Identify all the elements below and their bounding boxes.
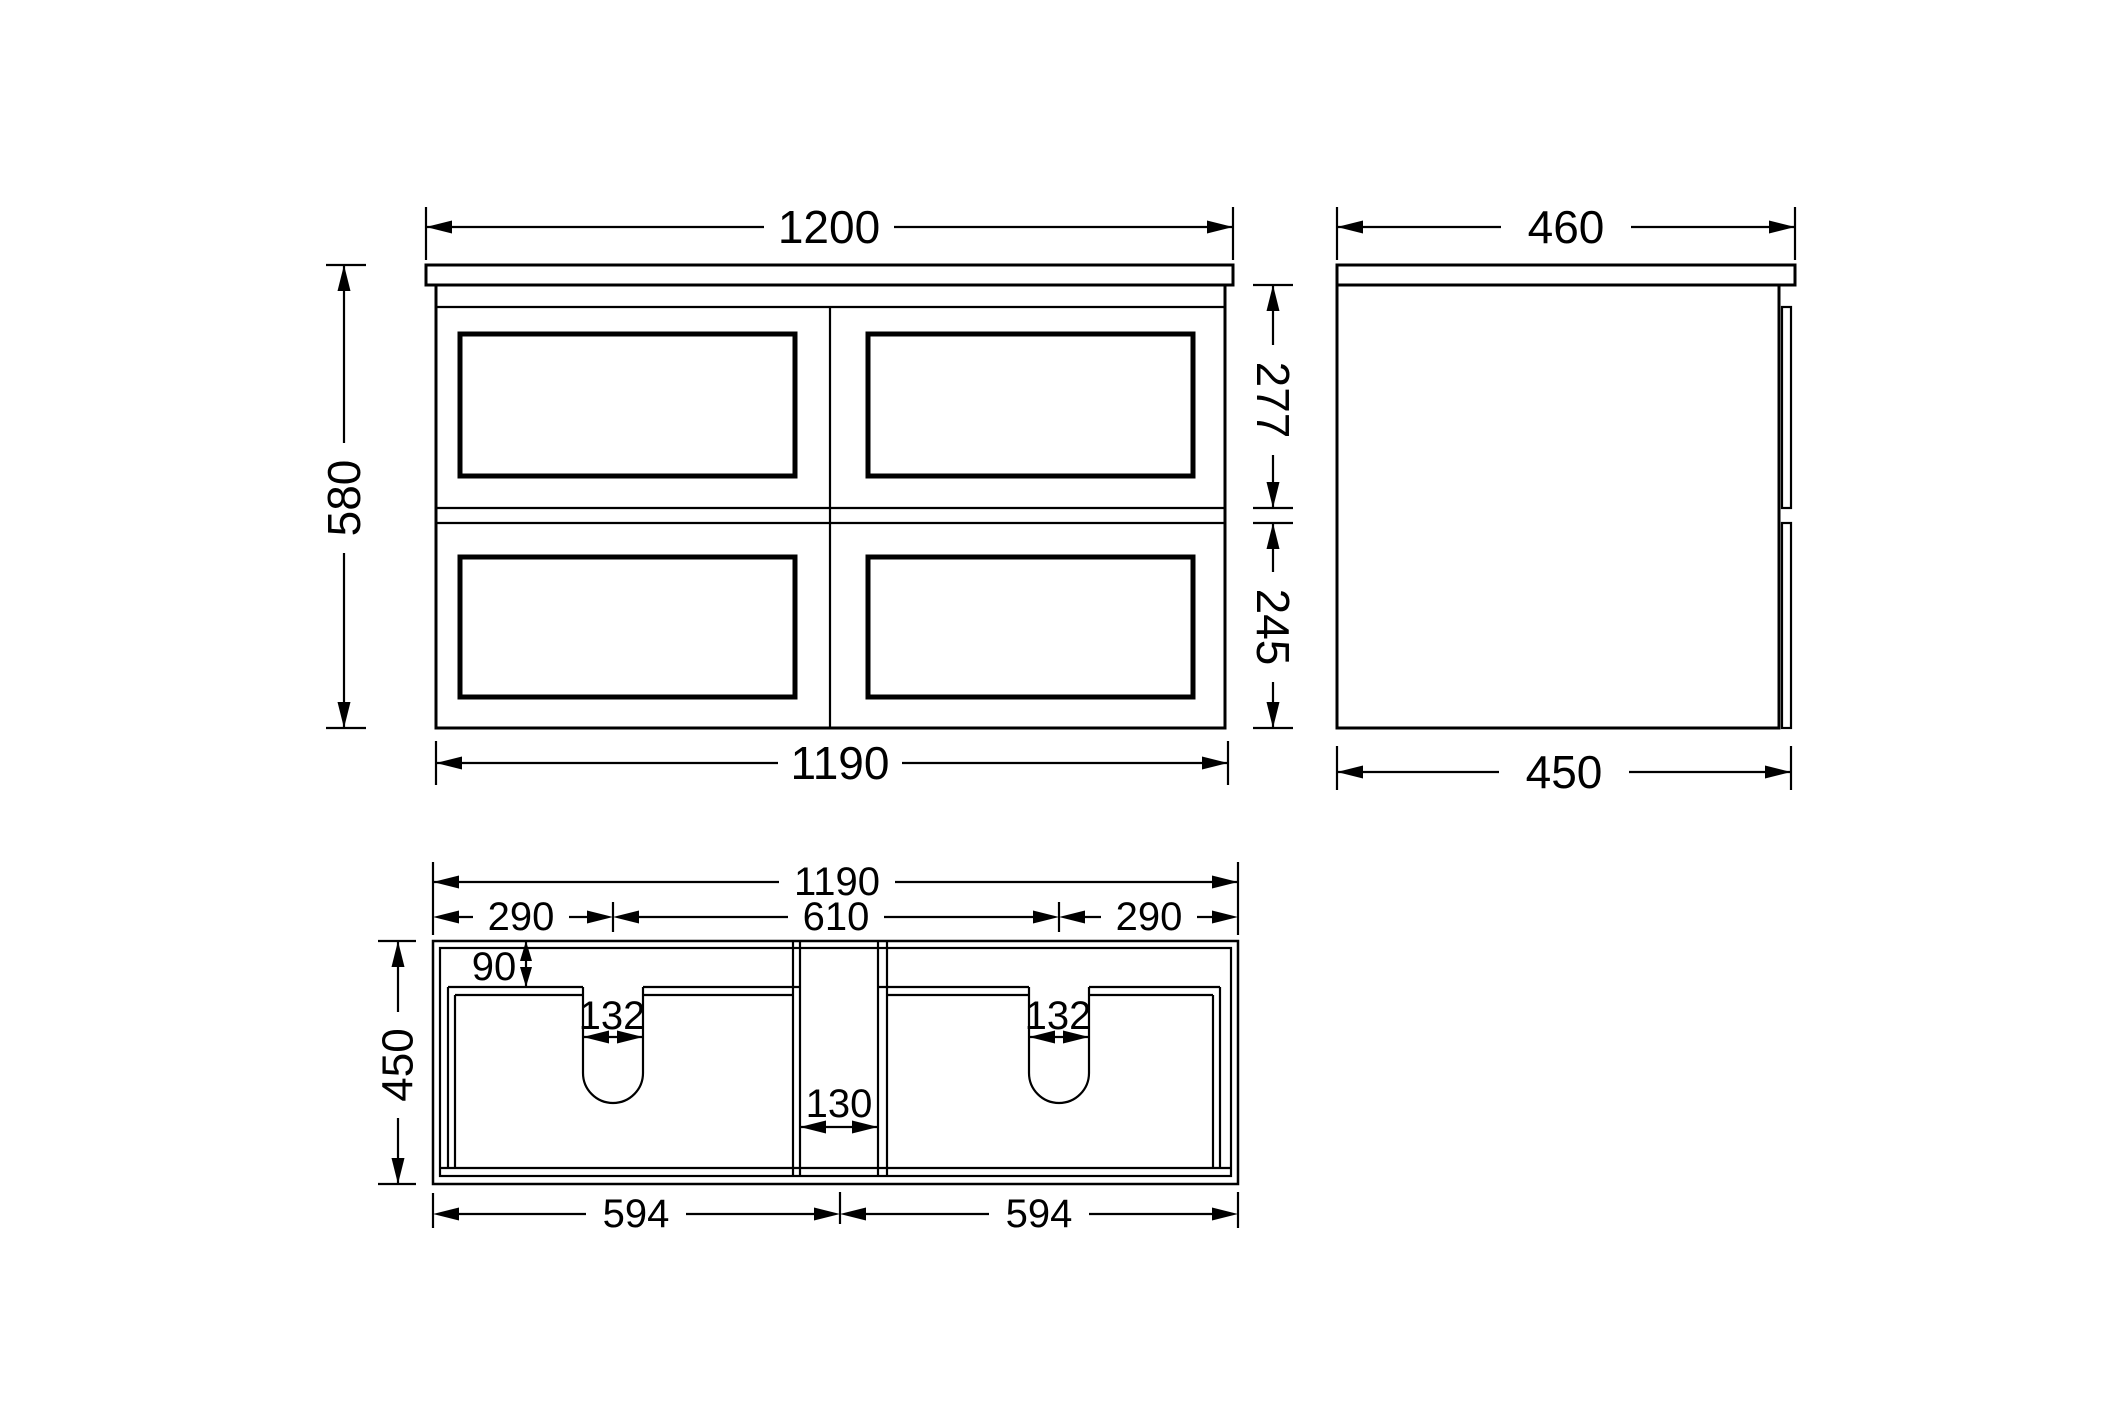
- arrowhead: [1212, 911, 1238, 924]
- dim-plan-drawer-width-left-label: 594: [603, 1192, 670, 1236]
- dim-front-top-drawer-height-label: 277: [1247, 362, 1299, 439]
- plan-outer-outline: [433, 941, 1238, 1184]
- dim-plan-back-inset-label: 90: [472, 945, 517, 989]
- arrowhead-right: [1202, 757, 1228, 770]
- arrowhead-left: [1337, 766, 1363, 779]
- arrowhead-right: [1207, 221, 1233, 234]
- dim-plan-depth: 450: [374, 941, 423, 1184]
- arrowhead-down: [1267, 702, 1280, 728]
- dim-plan-notch-width-right-label: 132: [1025, 994, 1092, 1038]
- side-view: 460 450: [1337, 201, 1795, 798]
- arrowhead-up: [338, 265, 351, 291]
- side-drawer-front-edge-top: [1782, 307, 1791, 508]
- arrowhead-right: [1212, 876, 1238, 889]
- drawing-canvas: 1200 580 277: [0, 0, 2110, 1407]
- right-box-right-walls: [1213, 987, 1220, 1168]
- dim-front-overall-height-label: 580: [318, 460, 370, 537]
- arrowhead: [587, 911, 613, 924]
- side-drawer-front-edge-bottom: [1782, 523, 1791, 728]
- arrowhead-down: [392, 1158, 405, 1184]
- arrowhead-down: [520, 967, 532, 987]
- arrowhead-down: [338, 702, 351, 728]
- dim-front-bottom-drawer-height-label: 245: [1247, 589, 1299, 666]
- dim-front-overall-width: 1200: [426, 201, 1233, 260]
- arrowhead: [433, 911, 459, 924]
- dim-plan-notch-width-right: 132: [1025, 994, 1092, 1044]
- front-drawer-panel-top-right: [868, 334, 1193, 476]
- arrowhead-left: [436, 757, 462, 770]
- dim-side-overall-depth: 460: [1337, 201, 1795, 260]
- dim-plan-drawer-widths: 594 594: [433, 1192, 1238, 1236]
- arrowhead: [1212, 1208, 1238, 1221]
- arrowhead-left: [1337, 221, 1363, 234]
- front-view: 1200 580 277: [318, 201, 1299, 789]
- arrowhead-left: [433, 876, 459, 889]
- arrowhead: [1033, 911, 1059, 924]
- plan-center-divider: [793, 941, 887, 1176]
- arrowhead-right: [1765, 766, 1791, 779]
- arrowhead-up: [1267, 285, 1280, 311]
- dim-side-overall-depth-label: 460: [1528, 201, 1605, 253]
- plan-view: 1190 290 610 290: [374, 860, 1239, 1236]
- arrowhead-right: [1769, 221, 1795, 234]
- arrowhead-up: [520, 941, 532, 961]
- arrowhead-up: [392, 941, 405, 967]
- arrowhead: [1059, 911, 1085, 924]
- dim-plan-right-offset-label: 290: [1116, 895, 1183, 939]
- dim-front-carcass-width: 1190: [436, 737, 1228, 789]
- front-drawer-panel-top-left: [460, 334, 795, 476]
- front-countertop: [426, 265, 1233, 285]
- arrowhead-up: [1267, 523, 1280, 549]
- side-cabinet-body: [1337, 285, 1779, 728]
- left-box-left-walls: [448, 987, 455, 1168]
- arrowhead-down: [1267, 482, 1280, 508]
- center-divider-walls: [793, 941, 887, 1176]
- dim-front-bottom-drawer-height: 245: [1247, 523, 1299, 728]
- dim-front-carcass-width-label: 1190: [791, 737, 890, 789]
- dim-plan-notch-chain: 290 610 290: [433, 895, 1238, 939]
- arrowhead-left: [426, 221, 452, 234]
- technical-drawing: 1200 580 277: [0, 0, 2110, 1407]
- dim-plan-notch-width-left-label: 132: [579, 994, 646, 1038]
- dim-plan-drawer-width-right-label: 594: [1006, 1192, 1073, 1236]
- front-drawer-panel-bottom-left: [460, 557, 795, 697]
- plan-inner-outline: [440, 948, 1231, 1176]
- dim-front-overall-height: 580: [318, 265, 370, 728]
- dim-plan-center-span-label: 610: [803, 895, 870, 939]
- arrowhead: [814, 1208, 840, 1221]
- dim-plan-center-gap-label: 130: [806, 1082, 873, 1126]
- dim-plan-depth-label: 450: [374, 1028, 423, 1101]
- side-countertop: [1337, 265, 1795, 285]
- dim-side-carcass-depth: 450: [1337, 746, 1791, 798]
- arrowhead: [613, 911, 639, 924]
- arrowhead: [840, 1208, 866, 1221]
- dim-plan-notch-width-left: 132: [579, 994, 646, 1044]
- dim-front-top-drawer-height: 277: [1247, 285, 1299, 508]
- dim-front-overall-width-label: 1200: [778, 201, 880, 253]
- dim-plan-center-gap: 130: [800, 1082, 878, 1134]
- extension-lines: [433, 1192, 1238, 1228]
- arrowhead: [433, 1208, 459, 1221]
- front-drawer-panel-bottom-right: [868, 557, 1193, 697]
- dim-plan-left-offset-label: 290: [488, 895, 555, 939]
- dim-side-carcass-depth-label: 450: [1526, 746, 1603, 798]
